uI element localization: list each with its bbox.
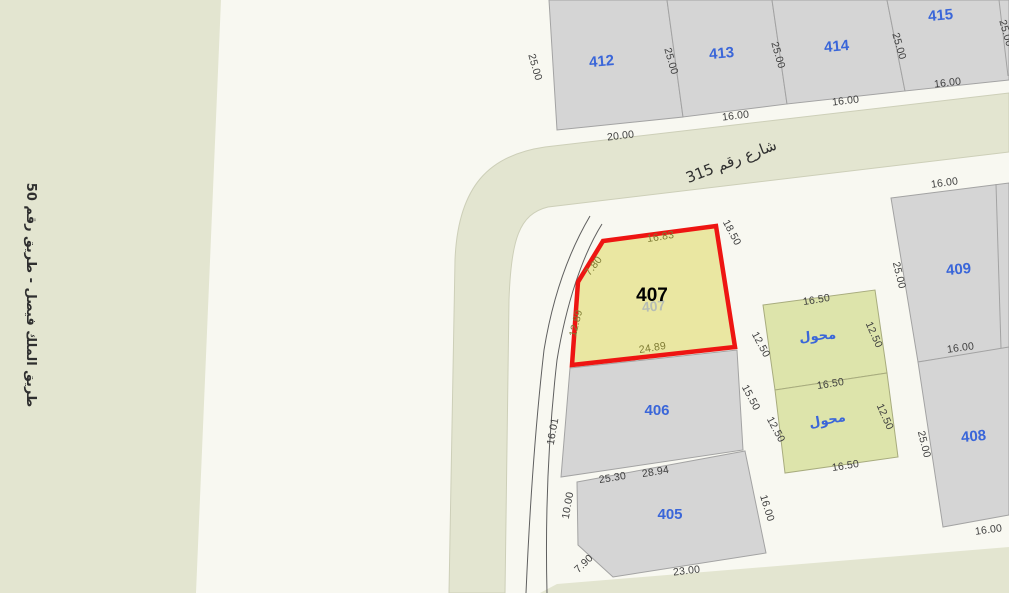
dimension-label: 16.00: [933, 75, 962, 90]
dimension-label: 16.00: [930, 175, 959, 191]
dimension-label: 10.00: [560, 491, 577, 520]
dimension-label: 16.00: [831, 93, 860, 108]
transformer-label: محول: [799, 327, 837, 345]
dimension-label: 16.01: [545, 417, 562, 446]
dimension-label: 16.00: [721, 108, 750, 123]
parcel-number-label: 414: [823, 37, 850, 56]
dimension-label: 18.50: [720, 218, 743, 248]
dimension-label: 16.00: [757, 493, 776, 523]
parcel-407-number: 407: [636, 285, 668, 306]
parcel-number-label: 413: [708, 44, 734, 63]
cadastral-map: 25.0025.0025.0025.0025.0020.0016.0016.00…: [0, 0, 1009, 593]
parcel-number-label: 408: [960, 427, 986, 446]
dimension-label: 16.00: [974, 522, 1003, 538]
parcel-number-label: 409: [945, 260, 971, 279]
dimension-label: 25.00: [525, 52, 544, 82]
parcel-number-label: 412: [588, 52, 614, 71]
dimension-label: 15.50: [739, 383, 762, 413]
parcel-412[interactable]: [549, 0, 683, 130]
parcel-number-label: 415: [927, 6, 953, 25]
king-faisal-road-name-label: طريق الملك فيصل - طريق رقم 50: [23, 183, 38, 407]
parcel-number-label: 406: [644, 402, 669, 419]
parcel-number-label: 405: [657, 506, 682, 523]
